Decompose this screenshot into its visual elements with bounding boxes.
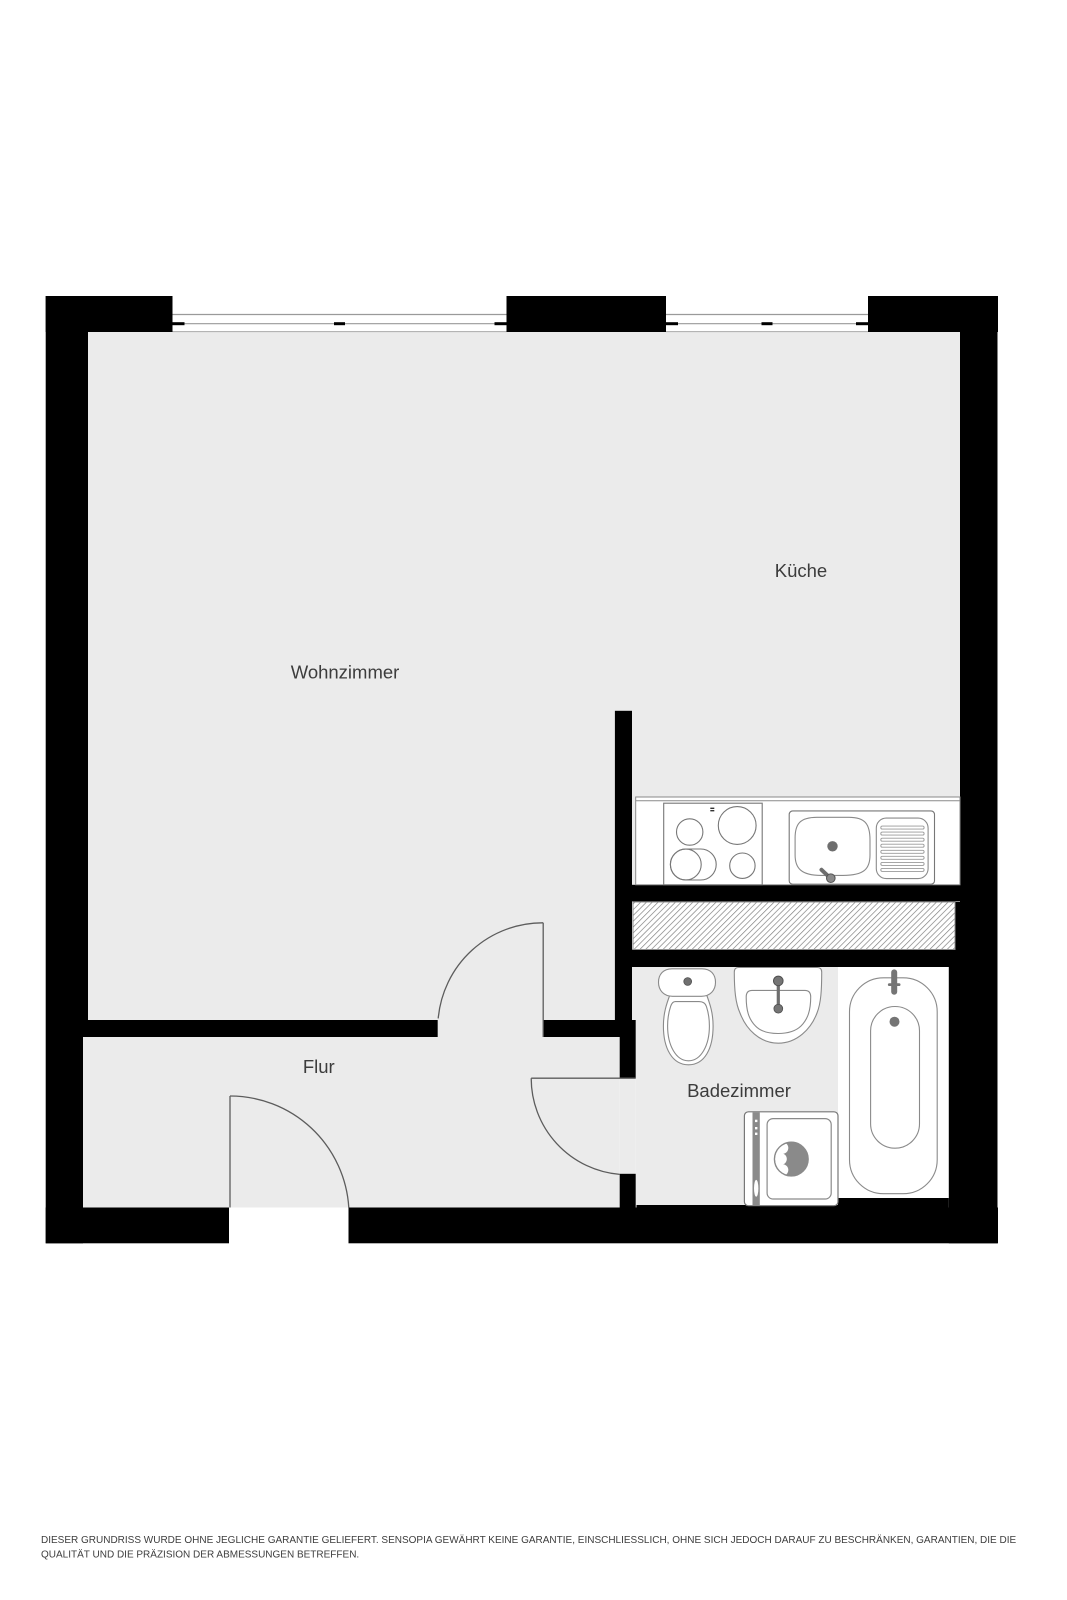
svg-text:Küche: Küche <box>775 560 827 581</box>
svg-text:DIESER GRUNDRISS WURDE OHNE JE: DIESER GRUNDRISS WURDE OHNE JEGLICHE GAR… <box>41 1534 1017 1546</box>
svg-text:Badezimmer: Badezimmer <box>687 1080 791 1101</box>
svg-text:QUALITÄT UND DIE PRÄZISION DER: QUALITÄT UND DIE PRÄZISION DER ABMESSUNG… <box>41 1549 359 1561</box>
svg-text:Wohnzimmer: Wohnzimmer <box>291 662 400 683</box>
svg-text:Flur: Flur <box>303 1056 335 1077</box>
